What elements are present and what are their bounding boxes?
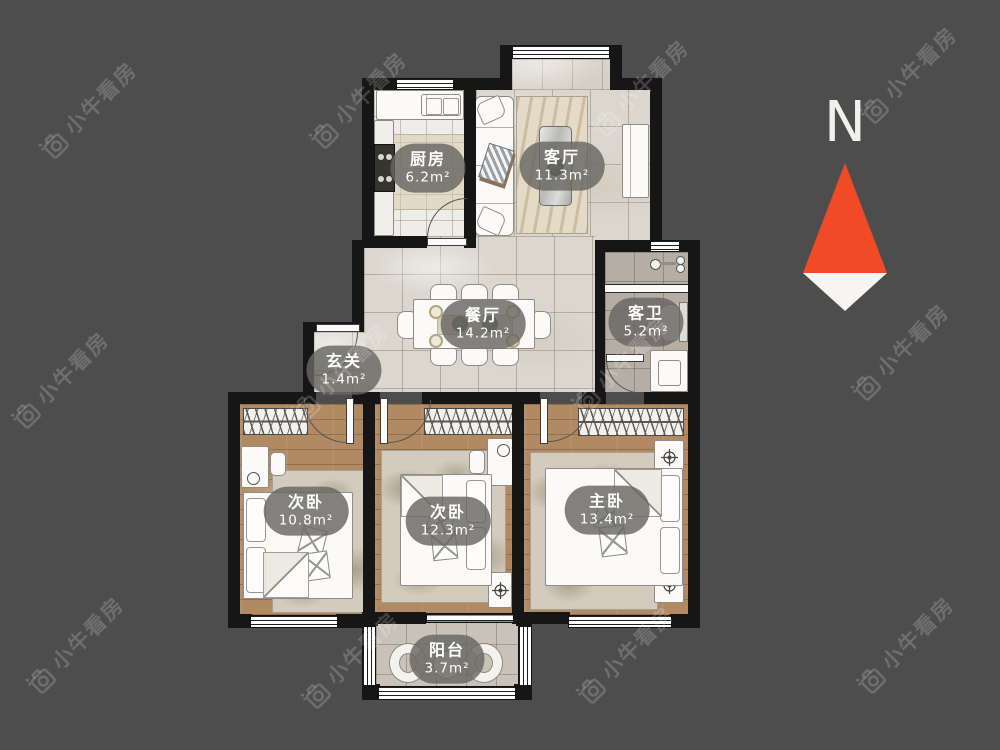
wall [352,240,364,332]
bathroom-window [650,240,680,252]
sink-basin [426,98,442,115]
wardrobe [243,408,308,435]
room-label-bath: 客卫 5.2m² [608,298,683,347]
dining-chair [461,348,488,366]
watermark-logo-icon [19,658,61,700]
desk-chair [270,452,286,476]
north-indicator: N [793,95,897,320]
room-name: 阳台 [424,641,469,661]
bedroom-left-door [346,398,354,444]
radiator-target-icon [492,582,509,599]
burner [386,154,392,160]
wall [688,240,700,404]
radiator-target-icon [661,449,678,466]
room-area: 10.8m² [279,513,334,530]
watermark-text: 小牛看房 [877,19,963,105]
balcony-sliding-door [426,613,514,623]
room-label-kitchen: 厨房 6.2m² [390,144,465,193]
floorplan-canvas: 厨房 6.2m² 客厅 11.3m² 餐厅 14.2m² 客卫 5.2m² 玄关… [0,0,1000,750]
wall [362,236,427,248]
watermark-logo-icon [4,393,46,435]
dining-chair [492,348,519,366]
room-name: 次卧 [421,503,476,523]
room-name: 客卫 [623,304,668,324]
north-label: N [824,95,866,151]
room-label-balcony: 阳台 3.7m² [409,635,484,684]
room-area: 6.2m² [405,170,450,187]
blanket-fold [263,552,309,598]
kitchen-door [427,238,467,246]
wall [688,392,700,628]
watermark-text: 小牛看房 [57,54,143,140]
kitchen-sink [421,94,461,116]
wall [228,614,252,628]
kitchen-window [396,78,454,90]
plate [429,334,443,348]
burner [378,176,384,182]
watermark-text: 小牛看房 [44,589,130,675]
burner [378,154,384,160]
room-name: 玄关 [321,352,366,372]
watermark: 小牛看房 [849,589,960,700]
desk-chair [469,450,485,474]
bay-window-floor [512,59,610,90]
master-window [568,615,672,628]
wall [362,78,374,248]
pillow [660,475,680,522]
desk-lamp-icon [247,472,260,485]
room-name: 主卧 [580,492,635,512]
fixture-bar [660,262,676,265]
watermark-text: 小牛看房 [29,324,115,410]
wall [228,392,316,404]
watermark-logo-icon [569,668,611,710]
bedroom-left-window [250,615,338,628]
room-area: 13.4m² [580,512,635,529]
wall [650,78,662,248]
dining-chair [430,348,457,366]
room-label-entry: 玄关 1.4m² [306,346,381,395]
room-name: 客厅 [535,148,590,168]
bay-window [512,45,610,59]
room-area: 12.3m² [421,523,476,540]
room-label-bedroom-mid: 次卧 12.3m² [406,497,491,546]
bedroom-mid-door [380,398,388,444]
watermark-logo-icon [849,658,891,700]
balcony-window-left [362,626,376,686]
sink-basin [443,98,459,115]
burner [386,176,392,182]
fixture-dot [676,264,685,273]
room-name: 厨房 [405,150,450,170]
pillow [246,498,266,542]
wall [422,392,540,404]
bath-sink-cabinet [650,350,688,392]
wall [595,240,605,392]
wall [670,614,700,628]
balcony-window-right [518,626,532,686]
north-arrow-icon [797,161,893,316]
room-area: 3.7m² [424,661,469,678]
watermark: 小牛看房 [19,589,130,700]
wall [512,404,524,616]
watermark-logo-icon [302,113,344,155]
wall [516,612,532,626]
watermark-logo-icon [294,673,336,715]
shower-fixture-icon [650,256,684,270]
room-name: 次卧 [279,493,334,513]
watermark: 小牛看房 [32,54,143,165]
watermark-logo-icon [844,365,886,407]
wall [228,392,240,628]
room-label-bedroom-left: 次卧 10.8m² [264,487,349,536]
room-area: 11.3m² [535,168,590,185]
shower-screen [605,284,688,293]
room-area: 1.4m² [321,372,366,389]
watermark: 小牛看房 [4,324,115,435]
pillow [660,527,680,574]
room-label-dining: 餐厅 14.2m² [441,300,526,349]
dining-chair [397,311,414,339]
entry-door [316,324,360,332]
dining-chair [534,311,551,339]
bath-sink-basin [658,360,681,386]
wall [514,684,532,700]
room-label-living: 客厅 11.3m² [520,142,605,191]
wardrobe [578,408,684,436]
wall [362,612,378,626]
room-label-master: 主卧 13.4m² [565,486,650,535]
watermark-logo-icon [32,123,74,165]
wall [452,78,512,90]
tv-cabinet [622,124,649,198]
watermark-text: 小牛看房 [874,589,960,675]
room-area: 14.2m² [456,326,511,343]
wardrobe [424,408,516,435]
desk-lamp-icon [497,444,510,457]
master-door [540,398,548,444]
wall [363,404,375,616]
balcony-window-front [378,686,516,700]
room-name: 餐厅 [456,306,511,326]
bathroom-door [606,354,644,362]
room-area: 5.2m² [623,324,668,341]
